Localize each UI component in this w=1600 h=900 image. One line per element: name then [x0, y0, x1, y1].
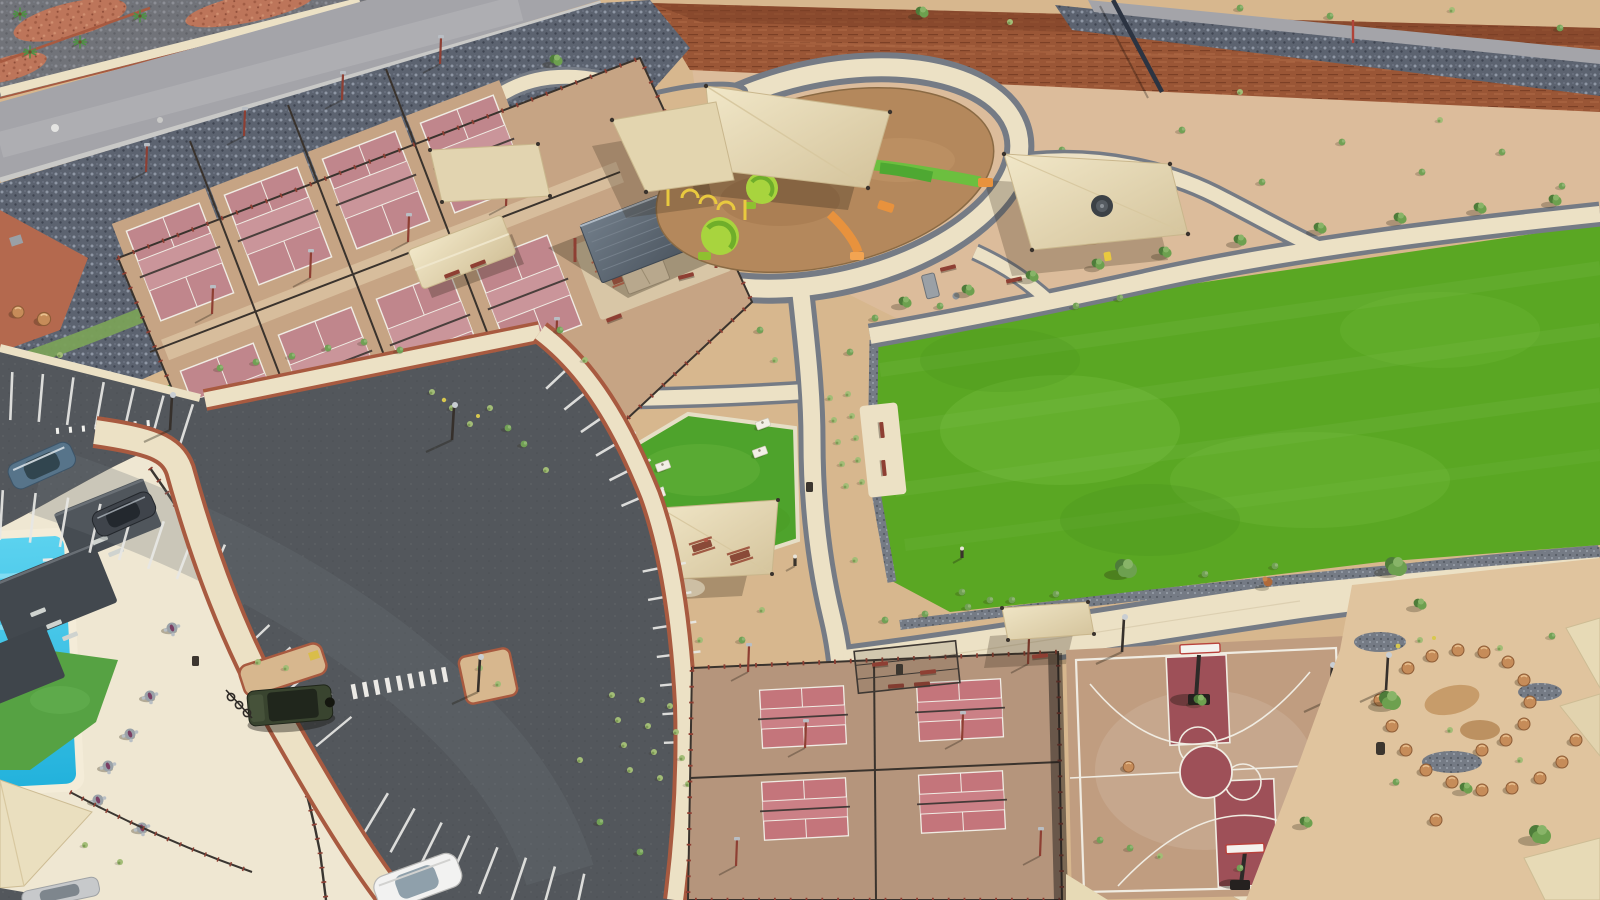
trash-can: [896, 664, 903, 675]
center-circle: [1180, 746, 1232, 798]
manhole: [51, 124, 59, 132]
person: [704, 538, 708, 542]
shade-sail-small: [430, 144, 550, 202]
aerial-park-photo: Aerial drone view of a desert community …: [0, 0, 1600, 900]
trash-can: [1376, 742, 1385, 755]
trash-can: [806, 482, 813, 492]
park-scene: Aerial drone view of a desert community …: [0, 0, 1600, 900]
trash-can: [192, 656, 199, 666]
